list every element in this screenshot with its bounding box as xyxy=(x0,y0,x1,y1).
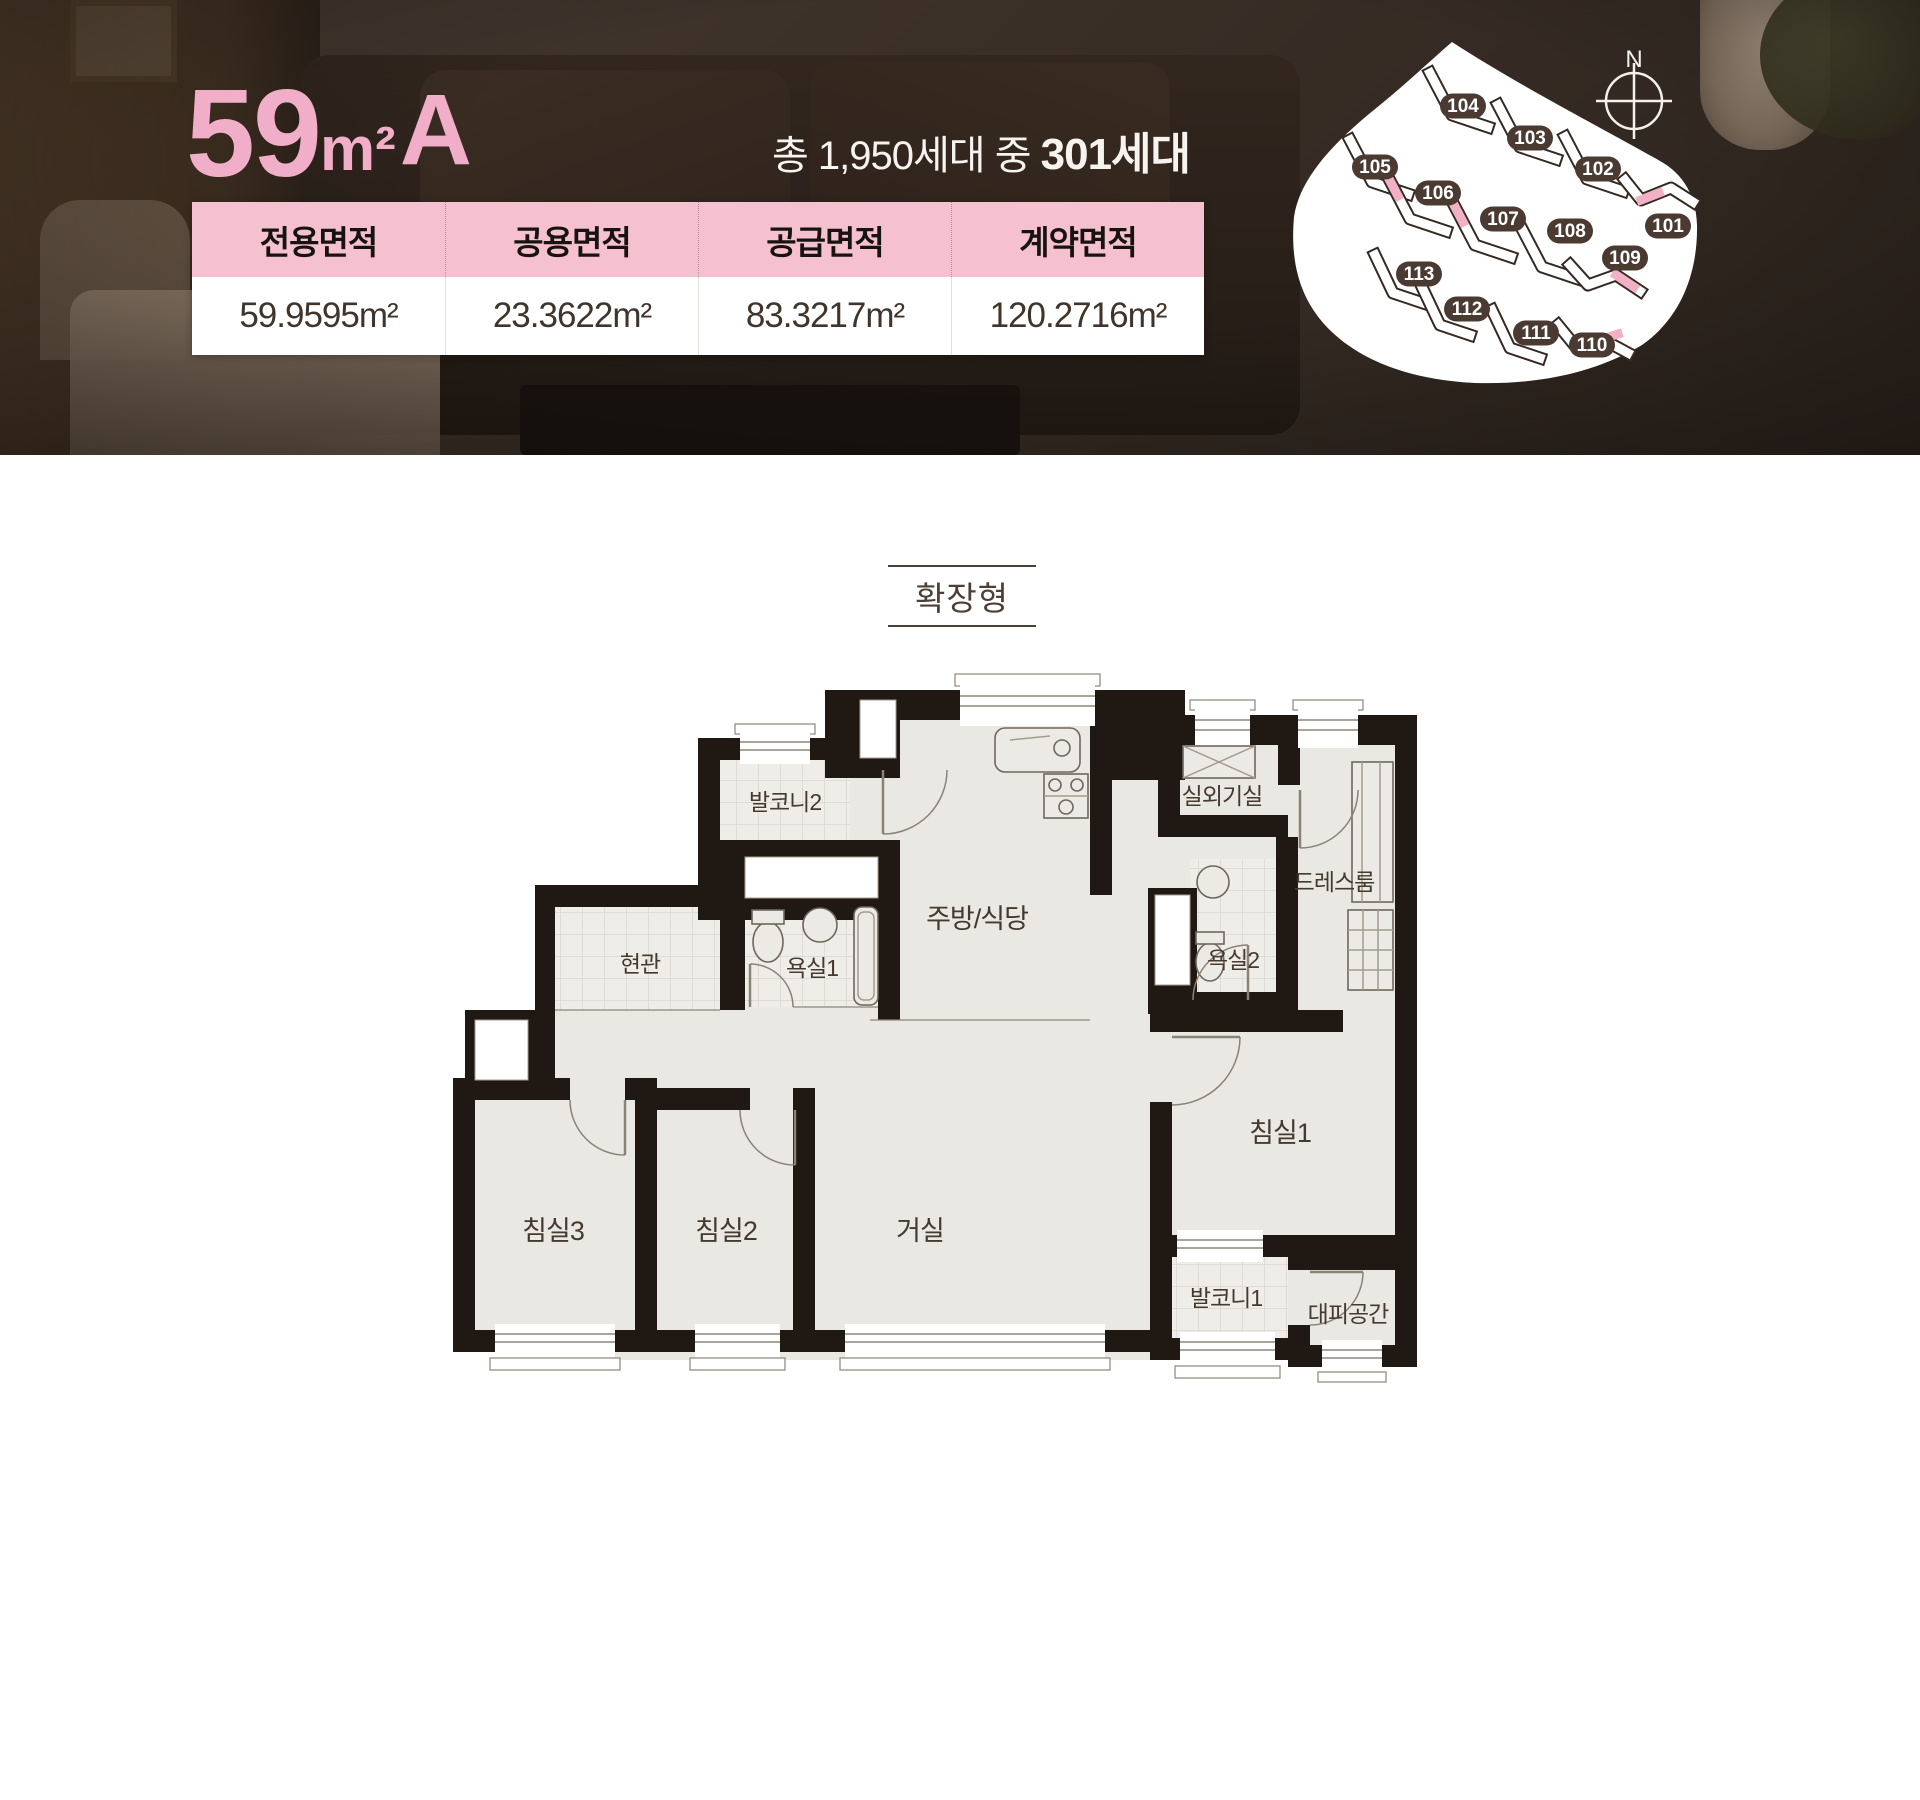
floor-plan: 발코니2 주방/식당 실외기실 드레스룸 욕실2 현관 욕실1 침실3 침실2 … xyxy=(450,670,1430,1390)
hero-photo: 59m²A 총 1,950세대 중 301세대 전용면적 59.9595m² 공… xyxy=(0,0,1920,455)
building-badge-112: 112 xyxy=(1444,297,1490,322)
building-badge-109: 109 xyxy=(1602,246,1648,271)
household-count-prefix: 총 1,950세대 중 xyxy=(772,134,1041,178)
room-label-kitchen: 주방/식당 xyxy=(926,904,1028,934)
page: { "header": { "title": { "size": "59", "… xyxy=(0,0,1920,1800)
building-badge-108: 108 xyxy=(1547,219,1593,244)
room-label-entrance: 현관 xyxy=(620,951,661,977)
sink-bath1 xyxy=(803,908,837,942)
area-col-common: 공용면적 23.3622m² xyxy=(445,202,698,355)
building-badge-103: 103 xyxy=(1507,126,1553,151)
room-label-bath1: 욕실1 xyxy=(786,955,838,981)
building-badge-102: 102 xyxy=(1575,157,1621,182)
svg-text:113: 113 xyxy=(1404,264,1435,285)
room-label-dressroom: 드레스룸 xyxy=(1294,869,1375,895)
svg-text:102: 102 xyxy=(1582,159,1614,180)
room-label-ac-room: 실외기실 xyxy=(1182,783,1263,809)
building-badge-107: 107 xyxy=(1480,207,1526,232)
building-badge-104: 104 xyxy=(1440,94,1486,119)
building-badge-101: 101 xyxy=(1645,214,1691,239)
area-header: 전용면적 xyxy=(192,202,445,277)
svg-text:112: 112 xyxy=(1452,299,1483,320)
area-value: 23.3622m² xyxy=(445,277,698,355)
building-badge-105: 105 xyxy=(1352,155,1398,180)
svg-text:108: 108 xyxy=(1554,221,1586,242)
svg-text:111: 111 xyxy=(1521,323,1551,344)
sink-bath2 xyxy=(1197,866,1229,898)
household-count-highlight: 301세대 xyxy=(1041,130,1190,179)
area-value: 120.2716m² xyxy=(951,277,1204,355)
room-label-living-room: 거실 xyxy=(896,1216,944,1246)
svg-text:101: 101 xyxy=(1652,216,1684,237)
area-table: 전용면적 59.9595m² 공용면적 23.3622m² 공급면적 83.32… xyxy=(192,202,1204,355)
svg-text:109: 109 xyxy=(1609,248,1641,269)
room-label-balcony2: 발코니2 xyxy=(749,789,821,815)
area-header: 공용면적 xyxy=(445,202,698,277)
room-label-bedroom2: 침실2 xyxy=(695,1216,757,1246)
area-value: 83.3217m² xyxy=(698,277,951,355)
room-label-balcony1: 발코니1 xyxy=(1190,1285,1262,1311)
toilet-bath1 xyxy=(753,922,783,962)
room-label-bedroom3: 침실3 xyxy=(522,1216,584,1246)
kitchen-faucet xyxy=(1054,740,1070,756)
svg-text:107: 107 xyxy=(1487,209,1519,230)
svg-text:105: 105 xyxy=(1359,157,1391,178)
area-col-exclusive: 전용면적 59.9595m² xyxy=(192,202,445,355)
area-col-contract: 계약면적 120.2716m² xyxy=(951,202,1204,355)
svg-text:106: 106 xyxy=(1422,183,1454,204)
building-badge-106: 106 xyxy=(1415,181,1461,206)
room-label-evacuation: 대피공간 xyxy=(1308,1301,1389,1327)
plan-type-tag: 확장형 xyxy=(888,565,1036,627)
building-badge-113: 113 xyxy=(1396,262,1442,287)
site-map: N 101 102 103 104 105 106 107 108 109 11… xyxy=(1270,25,1720,395)
area-header: 계약면적 xyxy=(951,202,1204,277)
household-count-line: 총 1,950세대 중 301세대 xyxy=(0,118,1190,182)
room-label-bath2: 욕실2 xyxy=(1207,947,1259,973)
svg-text:104: 104 xyxy=(1447,96,1479,117)
room-label-bedroom1: 침실1 xyxy=(1249,1118,1311,1148)
building-badge-111: 111 xyxy=(1513,321,1559,346)
svg-text:110: 110 xyxy=(1577,335,1608,356)
area-col-supply: 공급면적 83.3217m² xyxy=(698,202,951,355)
building-badge-110: 110 xyxy=(1569,333,1615,358)
area-value: 59.9595m² xyxy=(192,277,445,355)
svg-text:103: 103 xyxy=(1514,128,1546,149)
area-header: 공급면적 xyxy=(698,202,951,277)
compass: N xyxy=(1596,46,1672,139)
